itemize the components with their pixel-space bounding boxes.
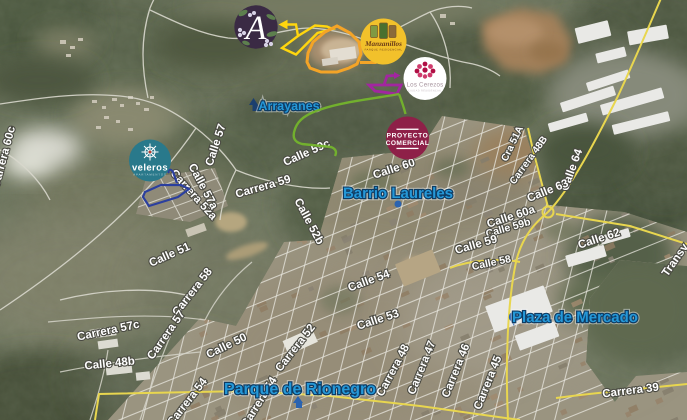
svg-text:Barrio Laureles: Barrio Laureles	[343, 185, 453, 202]
svg-text:Parque de Rionegro: Parque de Rionegro	[224, 381, 376, 398]
svg-text:COMERCIAL: COMERCIAL	[386, 140, 430, 147]
svg-text:CIUDAD RESIDENCIAL: CIUDAD RESIDENCIAL	[408, 90, 442, 93]
svg-text:APARTAMENTOS: APARTAMENTOS	[133, 173, 166, 177]
svg-text:Arrayanes: Arrayanes	[258, 99, 319, 113]
svg-text:Los Cerezos: Los Cerezos	[407, 82, 444, 89]
svg-text:Plaza de Mercado: Plaza de Mercado	[512, 309, 638, 326]
svg-text:PARQUE RESIDENCIAL: PARQUE RESIDENCIAL	[365, 49, 403, 52]
svg-text:Manzanillos: Manzanillos	[364, 40, 402, 48]
svg-text:PROYECTO: PROYECTO	[387, 133, 429, 140]
